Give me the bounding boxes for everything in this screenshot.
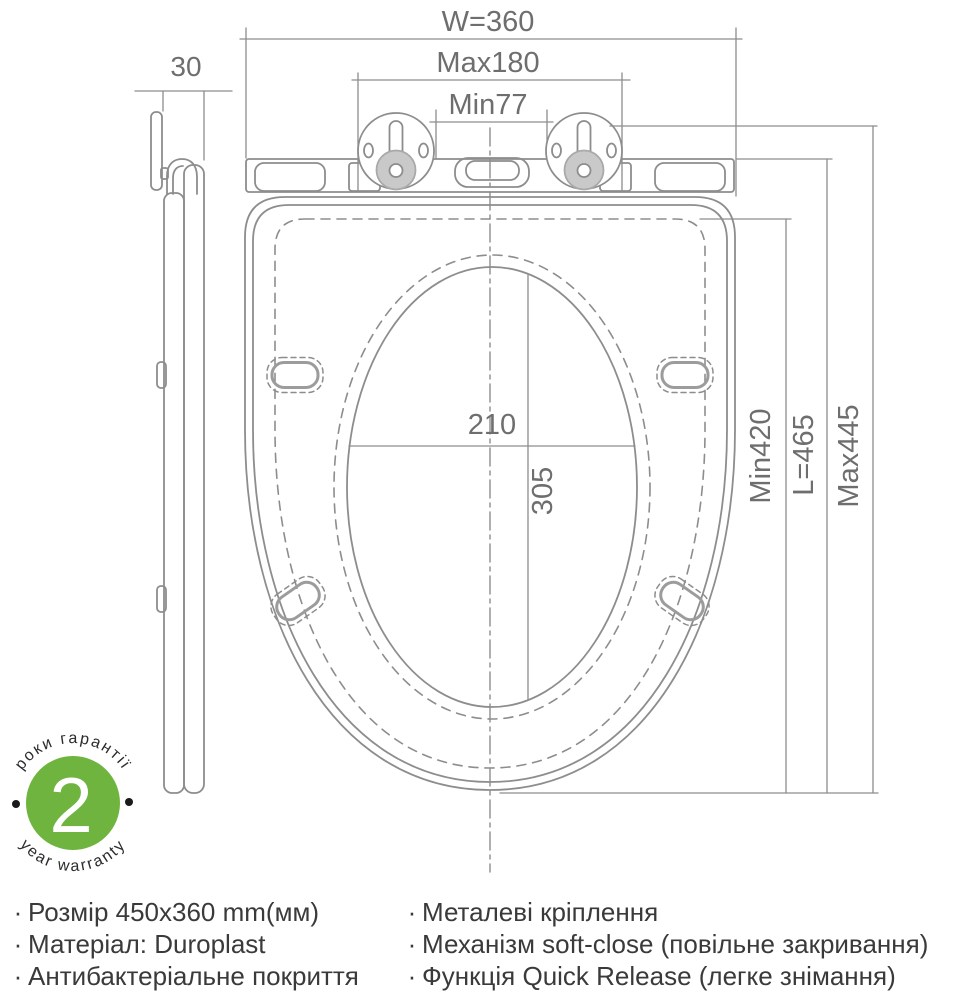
feature-item: ·Функція Quick Release (легке знімання) (402, 960, 928, 992)
dim-length-max-label: Max445 (833, 404, 865, 507)
bumper-pad-bottom-left (265, 571, 331, 632)
feature-text: Розмір 450x360 mm(мм) (28, 897, 319, 927)
dim-width-label: W=360 (442, 6, 535, 38)
bullet-icon: · (402, 896, 422, 928)
bullet-icon: · (402, 928, 422, 960)
dim-opening (349, 274, 635, 700)
bar-tab-right (655, 163, 725, 191)
opening-hidden-edge (334, 255, 650, 719)
feature-text: Механізм soft-close (повільне закривання… (422, 929, 928, 959)
hinge-right (546, 113, 622, 190)
bullet-icon: · (8, 960, 28, 992)
bullet-icon: · (8, 896, 28, 928)
bullet-icon: · (402, 960, 422, 992)
side-lid-strip (184, 165, 204, 793)
feature-list-left: ·Розмір 450x360 mm(мм) ·Матеріал: Duropl… (8, 896, 359, 992)
side-seat-strip (164, 193, 184, 793)
dim-lines-right (500, 126, 878, 793)
bullet-icon: · (8, 928, 28, 960)
feature-item: ·Антибактеріальне покриття (8, 960, 359, 992)
feature-text: Антибактеріальне покриття (28, 961, 359, 991)
dim-opening-width-label: 210 (468, 409, 516, 441)
feature-text: Металеві кріплення (422, 897, 658, 927)
bumper-pad-bottom-right (649, 571, 715, 632)
dim-hinge-max-label: Max180 (436, 47, 539, 79)
dim-length-total-label: L=465 (788, 414, 820, 495)
feature-item: ·Механізм soft-close (повільне закриванн… (402, 928, 928, 960)
dim-thickness (135, 91, 232, 160)
side-view-profile (151, 112, 204, 793)
warranty-badge: 2 роки гарантії year warranty (12, 730, 135, 875)
dim-hinge-min-label: Min77 (449, 89, 528, 121)
dim-opening-length-label: 305 (527, 467, 559, 515)
opening-edge (347, 267, 637, 707)
badge-dot-right (125, 798, 133, 806)
feature-text: Функція Quick Release (легке знімання) (422, 961, 896, 991)
hinge-left (358, 113, 434, 190)
dim-length-min-label: Min420 (745, 408, 777, 503)
feature-list-right: ·Металеві кріплення ·Механізм soft-close… (402, 896, 928, 992)
toilet-seat-dimension-diagram: 30 W=360 Max180 Min77 210 305 Min420 L=4… (0, 0, 969, 1000)
badge-dot-left (12, 800, 20, 808)
feature-item: ·Розмір 450x360 mm(мм) (8, 896, 359, 928)
feature-item: ·Металеві кріплення (402, 896, 928, 928)
warranty-years-number: 2 (49, 761, 92, 849)
dim-thickness-label: 30 (170, 51, 201, 82)
bar-tab-left (255, 163, 325, 191)
lift-handle-inner (466, 161, 519, 180)
feature-text: Матеріал: Duroplast (28, 929, 266, 959)
feature-item: ·Матеріал: Duroplast (8, 928, 359, 960)
technical-drawing: 30 W=360 Max180 Min77 210 305 Min420 L=4… (0, 0, 969, 1000)
side-lid-hook-inner (173, 166, 183, 194)
